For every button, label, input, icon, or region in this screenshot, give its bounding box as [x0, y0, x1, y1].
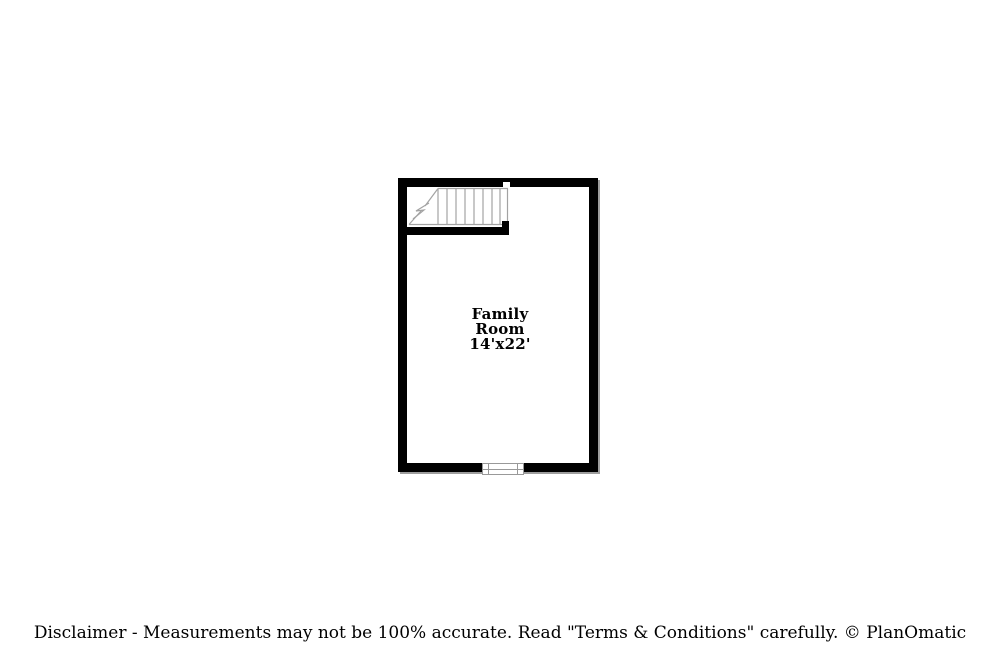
window-frame-right — [517, 464, 518, 474]
window-symbol — [482, 463, 524, 475]
window-frame-left — [488, 464, 489, 474]
stair-wall-notch — [503, 182, 510, 187]
stair-wall-end — [502, 221, 509, 235]
disclaimer-text: Disclaimer - Measurements may not be 100… — [0, 622, 1000, 644]
room-label: Family Room 14'x22' — [420, 307, 580, 352]
floorplan-page: Family Room 14'x22' Disclaimer - Measure… — [0, 0, 1000, 667]
staircase-icon — [407, 187, 509, 228]
room-dimensions: 14'x22' — [420, 337, 580, 352]
stair-wall — [398, 227, 509, 235]
